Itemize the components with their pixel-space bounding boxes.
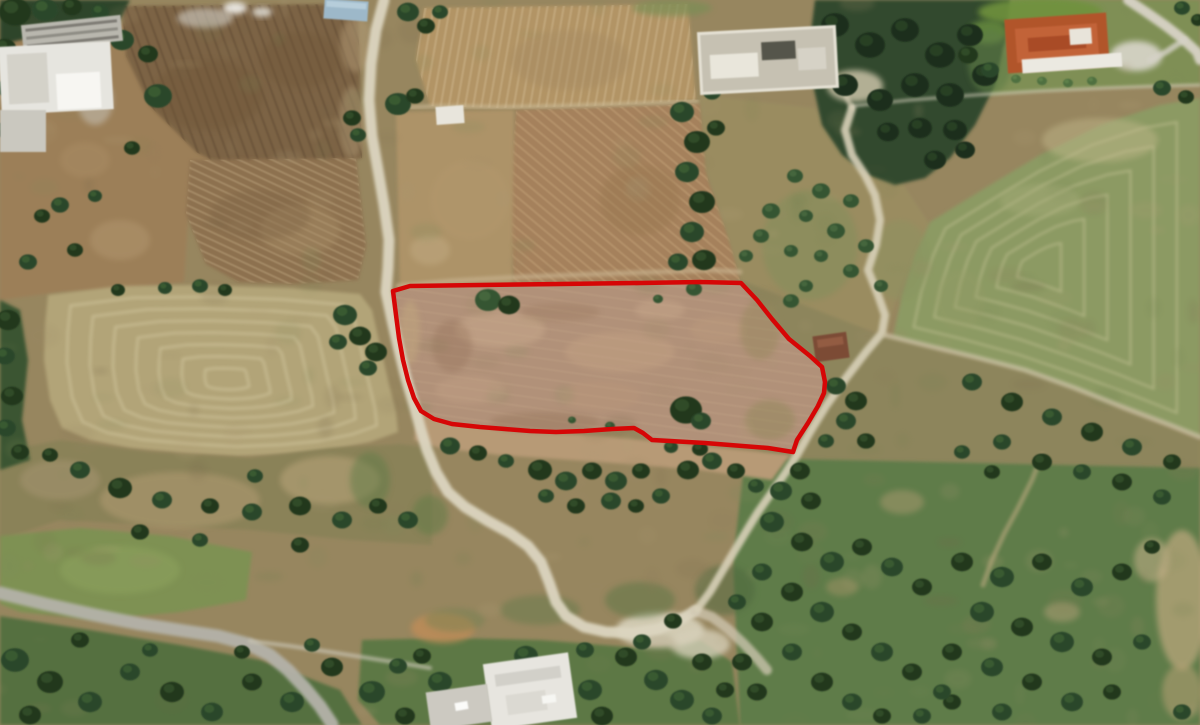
tree-highlight <box>501 298 511 306</box>
tree-highlight <box>160 283 166 288</box>
tree-highlight <box>750 481 757 487</box>
noise-blob <box>399 181 416 202</box>
noise-blob <box>410 223 441 241</box>
tree-highlight <box>90 191 96 196</box>
tree-highlight <box>671 255 680 263</box>
tree-highlight <box>204 500 212 507</box>
tree-highlight <box>585 464 594 472</box>
noise-blob <box>254 571 283 581</box>
noise-blob <box>841 569 864 591</box>
building-white-shed <box>435 105 464 125</box>
ground-patch <box>1042 118 1158 162</box>
tree-highlight <box>69 245 76 251</box>
noise-blob <box>1188 299 1199 325</box>
tree-highlight <box>1074 580 1084 588</box>
aerial-imagery <box>0 0 1200 725</box>
noise-blob <box>1012 379 1045 391</box>
noise-blob <box>612 146 641 168</box>
tree-highlight <box>961 26 973 36</box>
tree-highlight <box>134 526 142 533</box>
tree-highlight <box>335 513 344 521</box>
noise-blob <box>975 301 1001 322</box>
noise-blob <box>1038 289 1072 306</box>
tree-highlight <box>1115 565 1124 573</box>
noise-blob <box>225 139 237 158</box>
noise-blob <box>1140 571 1148 586</box>
noise-blob <box>477 603 503 617</box>
tree-highlight <box>965 375 974 383</box>
tree-highlight <box>0 312 10 321</box>
tree-highlight <box>961 48 970 56</box>
noise-blob <box>1092 597 1110 606</box>
tree-highlight <box>635 465 643 472</box>
tree-highlight <box>294 539 302 546</box>
noise-blob <box>299 476 307 489</box>
building-blue-roof-warehouse <box>323 0 368 22</box>
noise-blob <box>638 526 657 544</box>
tree-highlight <box>164 684 175 693</box>
tree-highlight <box>829 379 838 387</box>
noise-blob <box>496 190 511 208</box>
tree-highlight <box>362 362 370 369</box>
tree-highlight <box>372 500 380 507</box>
tree-highlight <box>936 686 944 693</box>
noise-blob <box>944 669 971 689</box>
tree-highlight <box>479 291 491 301</box>
tree-highlight <box>816 251 822 256</box>
tree-highlight <box>636 636 644 643</box>
building-section <box>761 41 796 61</box>
tree-highlight <box>688 133 700 143</box>
noise-blob <box>190 573 224 592</box>
building-ruin-compound <box>699 26 838 93</box>
noise-blob <box>266 334 278 356</box>
tree-highlight <box>884 560 894 568</box>
tree-highlight <box>986 467 993 473</box>
tree-highlight <box>785 296 792 302</box>
noise-blob <box>1118 101 1142 110</box>
noise-blob <box>638 116 668 128</box>
building-section <box>7 52 50 104</box>
building-section <box>710 53 759 79</box>
noise-blob <box>946 622 979 635</box>
tree-highlight <box>65 0 74 8</box>
tree-highlight <box>916 710 924 717</box>
tree-highlight <box>284 694 295 703</box>
noise-blob <box>1131 616 1144 637</box>
tree-highlight <box>871 91 883 101</box>
noise-blob <box>518 31 544 38</box>
tree-highlight <box>1054 634 1065 643</box>
noise-blob <box>336 378 366 386</box>
tree-highlight <box>825 15 838 26</box>
ground-patch <box>252 7 272 17</box>
tree-highlight <box>984 64 992 71</box>
noise-blob <box>91 393 114 402</box>
noise-blob <box>790 192 809 206</box>
tree-highlight <box>94 6 102 13</box>
tree-highlight <box>655 296 660 300</box>
noise-blob <box>23 561 33 571</box>
noise-blob <box>691 10 701 17</box>
noise-blob <box>698 156 715 171</box>
tree-highlight <box>443 439 452 447</box>
tree-highlight <box>1084 425 1094 433</box>
tree-highlight <box>1176 706 1184 713</box>
tree-highlight <box>607 423 612 427</box>
noise-blob <box>275 321 302 345</box>
tree-highlight <box>249 471 256 477</box>
noise-blob <box>489 59 498 69</box>
tree-highlight <box>1156 82 1164 89</box>
tree-highlight <box>705 454 714 462</box>
noise-blob <box>176 66 192 82</box>
tree-highlight <box>604 494 613 502</box>
tree-highlight <box>500 456 507 462</box>
tree-highlight <box>204 705 214 713</box>
noise-blob <box>1141 521 1159 542</box>
noise-blob <box>510 253 526 274</box>
tree-highlight <box>618 650 628 658</box>
noise-blob <box>1156 373 1175 391</box>
noise-blob <box>307 191 334 208</box>
tree-highlight <box>984 660 994 668</box>
ground-patch <box>635 300 685 320</box>
ground-patch <box>223 2 247 14</box>
noise-blob <box>914 103 923 118</box>
tree-highlight <box>860 435 868 442</box>
noise-blob <box>49 502 72 512</box>
noise-blob <box>201 219 226 227</box>
tree-highlight <box>996 436 1004 443</box>
noise-blob <box>621 434 633 455</box>
tree-highlight <box>126 143 133 149</box>
tree-highlight <box>306 640 313 646</box>
tree-highlight <box>1125 440 1134 448</box>
tree-highlight <box>954 555 964 563</box>
noise-blob <box>813 647 822 658</box>
noise-blob <box>1145 690 1168 712</box>
noise-blob <box>802 565 819 589</box>
tree-highlight <box>594 709 604 717</box>
tree-highlight <box>144 645 151 651</box>
noise-blob <box>629 192 651 199</box>
tree-highlight <box>1014 620 1024 628</box>
tree-highlight <box>409 90 417 97</box>
noise-blob <box>1040 150 1050 164</box>
noise-blob <box>1059 318 1086 341</box>
noise-blob <box>455 552 471 565</box>
noise-blob <box>318 416 333 438</box>
tree-highlight <box>332 336 340 343</box>
tree-highlight <box>786 246 792 251</box>
noise-blob <box>745 96 760 122</box>
noise-blob <box>54 111 85 120</box>
tree-highlight <box>22 708 32 716</box>
noise-blob <box>1177 204 1200 226</box>
noise-blob <box>149 166 161 179</box>
noise-blob <box>918 373 947 391</box>
tree-highlight <box>820 436 827 442</box>
tree-highlight <box>648 672 659 681</box>
tree-highlight <box>363 683 375 693</box>
noise-blob <box>1047 177 1075 201</box>
tree-highlight <box>1180 92 1187 98</box>
noise-blob <box>768 230 779 238</box>
tree-highlight <box>36 1 48 11</box>
ground-patch <box>880 490 924 514</box>
tree-highlight <box>401 513 410 521</box>
tree-highlight <box>141 47 150 55</box>
tree-highlight <box>420 20 428 27</box>
tree-highlight <box>148 86 161 97</box>
tree-highlight <box>912 120 923 129</box>
ground-patch <box>412 495 448 535</box>
noise-blob <box>723 383 759 394</box>
noise-blob <box>306 495 339 512</box>
tree-highlight <box>73 463 82 471</box>
noise-blob <box>891 383 900 408</box>
tree-highlight <box>880 125 890 133</box>
tree-highlight <box>112 480 123 489</box>
noise-blob <box>96 419 128 429</box>
noise-blob <box>274 396 302 407</box>
ground-patch <box>210 190 310 240</box>
noise-blob <box>655 467 668 487</box>
tree-highlight <box>292 499 302 507</box>
tree-highlight <box>895 20 908 31</box>
ground-patch <box>510 30 630 90</box>
noise-blob <box>1130 202 1163 219</box>
tree-highlight <box>845 625 854 633</box>
tree-highlight <box>930 45 944 56</box>
tree-highlight <box>684 224 695 233</box>
building-section <box>1069 28 1092 45</box>
tree-highlight <box>22 256 30 263</box>
noise-blob <box>512 240 535 252</box>
tree-highlight <box>5 650 18 661</box>
ground-patch <box>605 582 675 618</box>
noise-blob <box>578 446 609 454</box>
noise-blob <box>188 460 207 480</box>
noise-blob <box>225 427 242 448</box>
noise-blob <box>862 565 882 589</box>
tree-highlight <box>750 685 759 693</box>
tree-highlight <box>558 474 568 482</box>
tree-highlight <box>735 655 744 663</box>
tree-highlight <box>1146 542 1153 548</box>
noise-blob <box>472 44 490 61</box>
tree-highlight <box>693 193 705 203</box>
noise-blob <box>981 637 997 650</box>
tree-highlight <box>1166 456 1174 463</box>
noise-blob <box>418 339 449 353</box>
noise-blob <box>464 159 493 168</box>
noise-blob <box>578 537 590 547</box>
tree-highlight <box>695 655 704 663</box>
tree-highlight <box>630 501 637 507</box>
ground-patch <box>740 300 780 360</box>
noise-blob <box>1157 175 1190 185</box>
noise-blob <box>583 577 610 596</box>
noise-blob <box>13 173 25 179</box>
tree-highlight <box>1106 686 1114 693</box>
tree-highlight <box>4 389 14 397</box>
tree-highlight <box>785 645 794 653</box>
tree-highlight <box>927 153 937 161</box>
noise-blob <box>543 265 551 271</box>
noise-blob <box>415 54 432 71</box>
noise-blob <box>504 345 529 358</box>
noise-blob <box>92 546 121 552</box>
building-farmhouse <box>812 332 849 362</box>
noise-blob <box>1013 130 1037 146</box>
tree-highlight <box>4 1 18 13</box>
tree-highlight <box>945 645 954 653</box>
tree-highlight <box>368 345 378 353</box>
noise-blob <box>315 140 331 162</box>
noise-blob <box>228 220 252 231</box>
tree-highlight <box>793 464 802 472</box>
noise-blob <box>554 385 573 405</box>
tree-highlight <box>518 648 529 657</box>
building-industrial-building-main <box>0 41 114 115</box>
noise-blob <box>650 83 675 97</box>
noise-blob <box>239 75 261 92</box>
noise-blob <box>1080 202 1107 212</box>
tree-highlight <box>398 709 407 717</box>
tree-highlight <box>845 266 852 272</box>
tree-highlight <box>1156 491 1164 498</box>
tree-highlight <box>245 505 254 513</box>
tree-highlight <box>1039 78 1044 82</box>
noise-blob <box>43 543 63 561</box>
ground-patch <box>935 270 985 330</box>
noise-blob <box>0 553 20 578</box>
tree-highlight <box>236 647 243 653</box>
noise-blob <box>69 440 100 455</box>
noise-blob <box>1172 602 1194 617</box>
tree-highlight <box>389 95 401 105</box>
noise-blob <box>940 243 969 250</box>
noise-blob <box>703 532 729 540</box>
noise-blob <box>723 362 751 376</box>
tree-highlight <box>845 695 854 703</box>
noise-blob <box>273 33 284 45</box>
noise-blob <box>1088 97 1099 112</box>
tree-highlight <box>392 660 400 667</box>
noise-blob <box>693 352 728 374</box>
tree-highlight <box>155 493 164 501</box>
noise-blob <box>376 396 403 414</box>
building-industrial-pad <box>0 110 46 152</box>
noise-blob <box>472 355 501 368</box>
tree-highlight <box>824 554 835 563</box>
tree-highlight <box>194 535 201 541</box>
tree-highlight <box>789 171 796 177</box>
noise-blob <box>644 568 661 593</box>
noise-blob <box>31 636 50 642</box>
tree-highlight <box>839 414 848 422</box>
noise-blob <box>940 483 959 499</box>
noise-blob <box>1063 562 1078 569</box>
tree-highlight <box>569 417 573 420</box>
noise-blob <box>715 208 743 221</box>
tree-highlight <box>434 7 441 13</box>
tree-highlight <box>995 705 1004 713</box>
tree-highlight <box>940 85 953 96</box>
noise-blob <box>875 370 895 384</box>
tree-highlight <box>245 675 254 683</box>
noise-blob <box>643 318 670 340</box>
noise-blob <box>361 516 387 531</box>
noise-blob <box>863 473 885 486</box>
tree-highlight <box>688 284 695 290</box>
tree-highlight <box>1136 636 1144 643</box>
noise-blob <box>700 284 730 294</box>
noise-blob <box>709 511 736 530</box>
noise-blob <box>249 307 269 317</box>
noise-blob <box>520 316 549 325</box>
noise-blob <box>304 367 314 383</box>
noise-blob <box>515 14 529 26</box>
tree-highlight <box>113 285 119 290</box>
noise-blob <box>896 432 909 447</box>
noise-blob <box>319 106 335 119</box>
tree-highlight <box>41 673 53 683</box>
tree-highlight <box>905 75 918 86</box>
noise-blob <box>26 324 61 347</box>
tree-highlight <box>764 514 775 523</box>
tree-highlight <box>1045 410 1054 418</box>
tree-highlight <box>432 674 443 683</box>
tree-highlight <box>400 5 410 13</box>
tree-highlight <box>814 604 825 613</box>
noise-blob <box>410 571 423 587</box>
tree-highlight <box>784 585 794 593</box>
tree-highlight <box>1004 395 1014 403</box>
noise-blob <box>140 384 165 393</box>
noise-blob <box>302 247 322 272</box>
noise-blob <box>937 538 961 547</box>
tree-highlight <box>582 682 593 691</box>
noise-blob <box>273 151 302 163</box>
noise-blob <box>308 547 328 567</box>
tree-highlight <box>958 143 967 151</box>
noise-blob <box>769 354 778 368</box>
tree-highlight <box>655 490 663 497</box>
tree-highlight <box>848 394 858 402</box>
noise-blob <box>886 265 910 273</box>
tree-highlight <box>956 447 963 453</box>
tree-highlight <box>876 281 882 286</box>
noise-blob <box>323 264 333 280</box>
tree-highlight <box>674 692 685 701</box>
tree-highlight <box>915 580 924 588</box>
noise-blob <box>778 623 810 635</box>
noise-blob <box>651 382 677 401</box>
tree-highlight <box>801 281 807 286</box>
tree-highlight <box>730 465 738 472</box>
noise-blob <box>173 436 201 459</box>
tree-highlight <box>974 604 985 613</box>
tree-highlight <box>570 500 578 507</box>
tree-highlight <box>731 596 739 603</box>
noise-blob <box>1157 551 1187 571</box>
tree-highlight <box>765 205 773 212</box>
noise-blob <box>158 352 182 358</box>
noise-blob <box>716 635 729 644</box>
